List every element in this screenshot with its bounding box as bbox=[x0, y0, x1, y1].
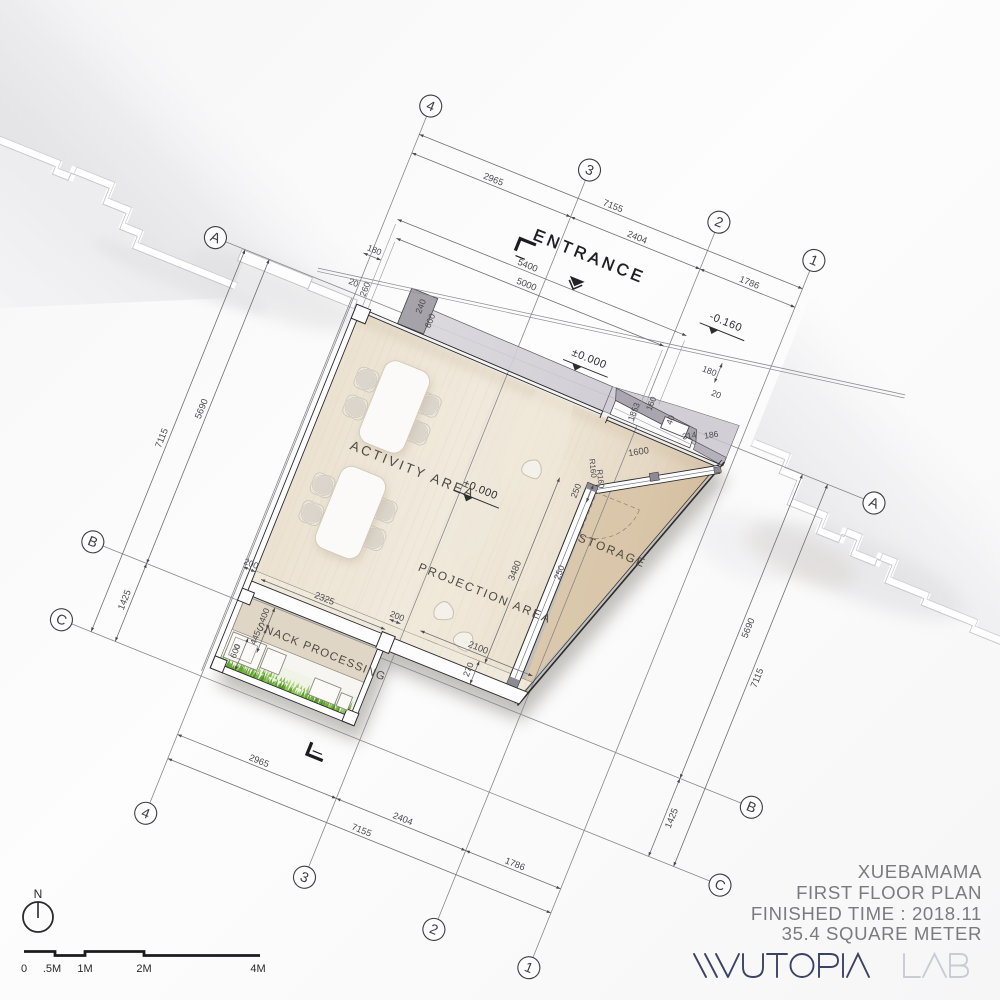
svg-text:1M: 1M bbox=[77, 963, 92, 975]
svg-text:4M: 4M bbox=[250, 963, 265, 975]
svg-text:N: N bbox=[34, 887, 43, 901]
svg-text:.5M: .5M bbox=[43, 963, 61, 975]
svg-text:XUEBAMAMA: XUEBAMAMA bbox=[858, 861, 982, 882]
svg-text:FIRST FLOOR PLAN: FIRST FLOOR PLAN bbox=[796, 882, 982, 903]
svg-text:FINISHED TIME : 2018.11: FINISHED TIME : 2018.11 bbox=[751, 903, 982, 924]
svg-text:0: 0 bbox=[21, 963, 27, 975]
svg-text:35.4 SQUARE METER: 35.4 SQUARE METER bbox=[782, 923, 982, 944]
svg-text:2M: 2M bbox=[136, 963, 151, 975]
